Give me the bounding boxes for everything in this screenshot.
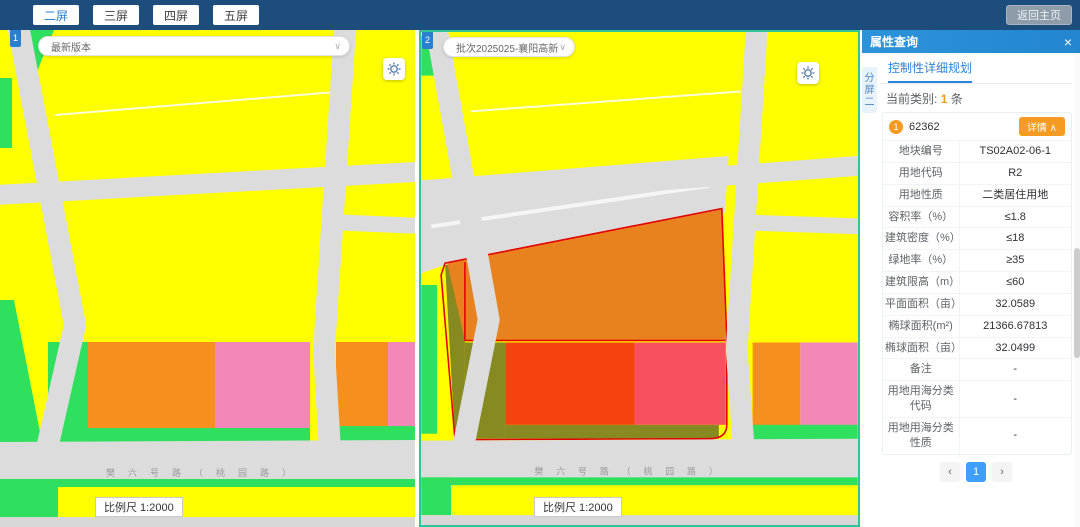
- pagination: ‹ 1 ›: [880, 462, 1072, 482]
- field-value: 32.0589: [959, 293, 1071, 315]
- field-label: 椭球面积(m²): [883, 315, 959, 337]
- field-label: 容积率（%）: [883, 206, 959, 228]
- field-label: 地块编号: [883, 141, 959, 163]
- map-panel-2[interactable]: 樊六号路（桃园路） 2 批次2025025-襄阳高新技 ∨ 比例尺 1:2000: [419, 30, 860, 527]
- field-label: 平面面积（亩）: [883, 293, 959, 315]
- parcel-green[interactable]: [421, 285, 437, 434]
- field-label: 建筑密度（%）: [883, 228, 959, 250]
- parcel-green-strip[interactable]: [336, 426, 415, 442]
- parcel-orange[interactable]: [336, 342, 388, 428]
- table-row: 建筑限高（m） ≤60: [883, 272, 1071, 294]
- table-row: 绿地率（%） ≥35: [883, 250, 1071, 272]
- table-row: 容积率（%） ≤1.8: [883, 206, 1071, 228]
- parcel-orange[interactable]: [753, 342, 801, 426]
- panel-header: 属性查询 ×: [862, 30, 1080, 53]
- panel-scrollbar-thumb[interactable]: [1074, 248, 1080, 358]
- screen-layout-button[interactable]: 四屏: [153, 5, 199, 25]
- pagination-prev-button[interactable]: ‹: [940, 462, 960, 482]
- parcel-orange[interactable]: [88, 342, 215, 430]
- field-value: -: [959, 359, 1071, 381]
- panel-title: 属性查询: [870, 33, 918, 50]
- table-row: 平面面积（亩） 32.0589: [883, 293, 1071, 315]
- map2-scalebar: 比例尺 1:2000: [534, 497, 622, 517]
- parcel-rose[interactable]: [635, 342, 726, 424]
- parcel-green-strip[interactable]: [0, 479, 415, 487]
- chevron-down-icon: ∨: [559, 42, 566, 53]
- map2-version-select[interactable]: 批次2025025-襄阳高新技 ∨: [443, 37, 575, 57]
- road-label: 樊六号路（桃园路）: [106, 467, 304, 478]
- screen-layout-buttons: 二屏三屏四屏五屏: [33, 5, 259, 25]
- map1-settings-button[interactable]: [383, 58, 405, 80]
- road-label: 樊六号路（桃园路）: [534, 465, 730, 476]
- gear-icon: [387, 62, 401, 76]
- record-card-header: 1 62362 详情 ∧: [883, 113, 1071, 140]
- field-label: 绿地率（%）: [883, 250, 959, 272]
- field-value: 32.0499: [959, 337, 1071, 359]
- parcel-yellow-strip[interactable]: [421, 485, 857, 515]
- parcel-green[interactable]: [0, 479, 58, 517]
- field-label: 备注: [883, 359, 959, 381]
- record-id: 62362: [909, 121, 940, 133]
- map1-version-label: 最新版本: [51, 39, 91, 54]
- panel-body: 分屏二 控制性详细规划 当前类别: 1 条 1 62362 详情 ∧: [862, 53, 1080, 527]
- field-value: 二类居住用地: [959, 184, 1071, 206]
- map2-version-label: 批次2025025-襄阳高新技: [456, 40, 559, 55]
- field-value: ≤60: [959, 272, 1071, 294]
- field-label: 用地性质: [883, 184, 959, 206]
- table-row: 用地用海分类性质 -: [883, 417, 1071, 453]
- category-prefix: 当前类别:: [886, 92, 937, 106]
- chevron-down-icon: ∨: [334, 41, 341, 52]
- tab-regulatory-plan[interactable]: 控制性详细规划: [888, 59, 972, 83]
- map1-scalebar: 比例尺 1:2000: [95, 497, 183, 517]
- app-window: 二屏三屏四屏五屏 返回主页: [0, 0, 1080, 527]
- table-row: 用地代码 R2: [883, 162, 1071, 184]
- table-row: 椭球面积（亩） 32.0499: [883, 337, 1071, 359]
- bottom-road: [0, 517, 415, 527]
- table-row: 地块编号 TS02A02-06-1: [883, 141, 1071, 163]
- table-row: 建筑密度（%） ≤18: [883, 228, 1071, 250]
- field-value: TS02A02-06-1: [959, 141, 1071, 163]
- record-marker-icon: 1: [889, 120, 903, 134]
- parcel-pink[interactable]: [800, 342, 858, 426]
- pagination-page-1[interactable]: 1: [966, 462, 986, 482]
- map2-settings-button[interactable]: [797, 62, 819, 84]
- gear-icon: [801, 66, 815, 80]
- category-suffix: 条: [951, 92, 963, 106]
- screen-layout-button[interactable]: 三屏: [93, 5, 139, 25]
- return-home-button[interactable]: 返回主页: [1006, 5, 1072, 25]
- parcel-green[interactable]: [421, 477, 451, 515]
- parcel-green-strip[interactable]: [421, 477, 857, 485]
- map1-number-badge: 1: [10, 30, 21, 47]
- field-label: 用地代码: [883, 162, 959, 184]
- parcel-olive-strip[interactable]: [506, 425, 719, 439]
- table-row: 用地性质 二类居住用地: [883, 184, 1071, 206]
- detail-toggle-button[interactable]: 详情 ∧: [1019, 117, 1065, 136]
- field-label: 椭球面积（亩）: [883, 337, 959, 359]
- map1-canvas[interactable]: 樊六号路（桃园路）: [0, 30, 415, 527]
- parcel-green[interactable]: [0, 78, 12, 148]
- field-value: -: [959, 381, 1071, 418]
- bottom-road: [421, 515, 857, 525]
- map2-number-badge: 2: [422, 32, 433, 49]
- panel-scrollbar-track[interactable]: [1074, 53, 1080, 527]
- field-label: 用地用海分类性质: [883, 417, 959, 453]
- field-value: ≤1.8: [959, 206, 1071, 228]
- attribute-query-panel: 属性查询 × 分屏二 控制性详细规划 当前类别: 1 条 1 62362 详情: [862, 30, 1080, 527]
- panel-tabs: 控制性详细规划: [880, 53, 1072, 84]
- parcel-green-strip[interactable]: [48, 428, 310, 442]
- close-icon[interactable]: ×: [1064, 35, 1072, 49]
- field-value: ≥35: [959, 250, 1071, 272]
- category-summary: 当前类别: 1 条: [880, 84, 1072, 112]
- pagination-next-button[interactable]: ›: [992, 462, 1012, 482]
- top-toolbar: 二屏三屏四屏五屏 返回主页: [0, 0, 1080, 30]
- side-tab-split-screen[interactable]: 分屏二: [862, 67, 877, 113]
- parcel-pink[interactable]: [388, 342, 415, 428]
- map2-canvas[interactable]: 樊六号路（桃园路）: [421, 32, 858, 525]
- field-label: 用地用海分类代码: [883, 381, 959, 418]
- category-count: 1: [941, 92, 948, 106]
- field-value: 21366.67813: [959, 315, 1071, 337]
- parcel-vermilion[interactable]: [506, 342, 635, 424]
- table-row: 椭球面积(m²) 21366.67813: [883, 315, 1071, 337]
- record-card: 1 62362 详情 ∧ 地块编号 TS02A02-06-1 用地代码 R2: [882, 112, 1072, 455]
- field-value: R2: [959, 162, 1071, 184]
- table-row: 用地用海分类代码 -: [883, 381, 1071, 418]
- screen-layout-button[interactable]: 二屏: [33, 5, 79, 25]
- map-panel-1[interactable]: 樊六号路（桃园路） 1 最新版本 ∨ 比例尺 1:2000: [0, 30, 415, 527]
- field-value: ≤18: [959, 228, 1071, 250]
- screen-layout-button[interactable]: 五屏: [213, 5, 259, 25]
- field-label: 建筑限高（m）: [883, 272, 959, 294]
- table-row: 备注 -: [883, 359, 1071, 381]
- field-value: -: [959, 417, 1071, 453]
- parcel-pink[interactable]: [215, 342, 310, 430]
- map1-version-select[interactable]: 最新版本 ∨: [38, 36, 350, 56]
- parcel-yellow-strip[interactable]: [0, 487, 415, 517]
- parcel-green-strip[interactable]: [753, 425, 858, 441]
- attributes-table: 地块编号 TS02A02-06-1 用地代码 R2 用地性质 二类居住用地 容积…: [883, 140, 1071, 454]
